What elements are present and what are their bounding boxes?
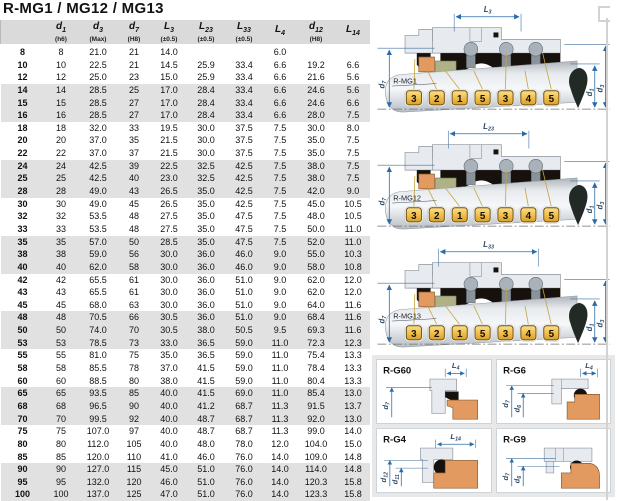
part-tag: 3: [496, 324, 514, 341]
svg-text:2: 2: [434, 94, 440, 105]
seat-panel-svg: L4d7d6R-G6: [497, 360, 611, 423]
value-cell: 40.0: [150, 400, 188, 413]
table-row: 8080112.010540.048.078.012.0104.015.0: [1, 438, 370, 451]
value-cell: 65: [44, 387, 78, 400]
value-cell: 33.4: [224, 84, 264, 97]
row-size-cell: 40: [1, 261, 44, 274]
value-cell: 27.5: [150, 223, 188, 236]
value-cell: 37.0: [78, 147, 118, 160]
value-cell: 20: [44, 134, 78, 147]
row-size-cell: 65: [1, 387, 44, 400]
dimension-label: d7: [377, 315, 387, 324]
value-cell: 63: [118, 299, 150, 312]
value-cell: 38.0: [296, 160, 336, 173]
value-cell: 7.5: [336, 134, 370, 147]
row-size-cell: 75: [1, 425, 44, 438]
dimension-label: d1: [585, 89, 595, 97]
value-cell: 48: [44, 311, 78, 324]
value-cell: 12.0: [336, 274, 370, 287]
value-cell: 11.3: [264, 425, 296, 438]
table-row: 100100137.012547.051.076.014.0123.315.8: [1, 488, 370, 501]
svg-text:3: 3: [503, 94, 509, 105]
row-size-cell: 12: [1, 71, 44, 84]
value-cell: 35.0: [150, 349, 188, 362]
row-size-cell: 35: [1, 236, 44, 249]
diagram-r-mg13: 3215345R-MG13L33d7d1d3: [372, 237, 615, 353]
value-cell: 59.0: [224, 337, 264, 350]
value-cell: 46.0: [150, 476, 188, 489]
table-row: 484870.56630.536.051.09.068.411.6: [1, 311, 370, 324]
value-cell: 32.0: [78, 122, 118, 135]
value-cell: 37: [118, 147, 150, 160]
table-row: 434365.56130.036.051.09.062.012.0: [1, 286, 370, 299]
value-cell: 125: [118, 488, 150, 501]
value-cell: 59.0: [224, 362, 264, 375]
table-row: 686896.59040.041.268.711.391.513.7: [1, 400, 370, 413]
value-cell: 11.0: [264, 362, 296, 375]
part-tag: 2: [428, 89, 446, 106]
value-cell: 14.0: [264, 463, 296, 476]
column-header: d12(H8): [296, 20, 336, 45]
dimension-label: L4: [452, 361, 460, 371]
value-cell: 76.0: [224, 463, 264, 476]
svg-text:3: 3: [503, 211, 509, 222]
value-cell: 42.5: [224, 198, 264, 211]
value-cell: 64.0: [296, 299, 336, 312]
value-cell: 51.0: [224, 286, 264, 299]
table-row: 121225.02315.025.933.46.621.65.6: [1, 71, 370, 84]
dimension-label: L33: [483, 240, 494, 250]
column-header: d1(h6): [44, 20, 78, 45]
part-tag: 5: [474, 324, 492, 341]
value-cell: 23.0: [150, 172, 188, 185]
value-cell: 73: [118, 337, 150, 350]
panel-label: R-G9: [503, 434, 526, 445]
value-cell: 55: [44, 349, 78, 362]
part-tag: 1: [451, 89, 469, 106]
part-tag: 4: [519, 206, 537, 223]
seal-model-label: R-MG12: [393, 194, 421, 203]
value-cell: 21.6: [296, 71, 336, 84]
value-cell: 8: [44, 45, 78, 59]
table-header: d1(h6)d3(Max)d7(H8)L3(±0.5)L23(±0.5)L33(…: [1, 20, 370, 45]
table-row: 505074.07030.538.050.59.569.311.6: [1, 324, 370, 337]
column-header: [1, 20, 44, 45]
value-cell: 66: [118, 311, 150, 324]
value-cell: 123.3: [296, 488, 336, 501]
value-cell: 75: [44, 425, 78, 438]
value-cell: 14.5: [150, 59, 188, 72]
value-cell: 30.5: [150, 311, 188, 324]
value-cell: 112.0: [78, 438, 118, 451]
row-size-cell: 68: [1, 400, 44, 413]
value-cell: 7.5: [264, 210, 296, 223]
value-cell: 61: [118, 286, 150, 299]
value-cell: 35: [118, 134, 150, 147]
dimension-label: d7: [381, 401, 391, 410]
value-cell: 76.0: [224, 488, 264, 501]
part-tag: 5: [542, 324, 560, 341]
value-cell: 33.0: [150, 337, 188, 350]
value-cell: 28.4: [188, 109, 224, 122]
value-cell: 28.4: [188, 84, 224, 97]
seat-panel-svg: L14d12d11R-G4: [377, 429, 491, 492]
seat-panels-grid: L4d7R-G60 L4d7d6R-G6 L14d12d11R-G4 d7d6R…: [372, 355, 615, 497]
value-cell: 60: [44, 375, 78, 388]
value-cell: 41.0: [150, 451, 188, 464]
value-cell: [224, 45, 264, 59]
row-size-cell: 58: [1, 362, 44, 375]
value-cell: 13.3: [336, 349, 370, 362]
spring: [529, 42, 543, 56]
dimension-label: d11: [390, 474, 400, 484]
value-cell: 10.5: [336, 210, 370, 223]
value-cell: 36.0: [188, 248, 224, 261]
value-cell: 33.4: [224, 97, 264, 110]
dimension-label: d7: [377, 197, 387, 206]
row-size-cell: 22: [1, 147, 44, 160]
value-cell: 10.8: [336, 261, 370, 274]
value-cell: 51.0: [188, 488, 224, 501]
value-cell: 7.5: [264, 122, 296, 135]
value-cell: 36.0: [188, 261, 224, 274]
seat-panel-svg: d7d6R-G9: [497, 429, 611, 492]
dimension-label: d1: [585, 324, 595, 332]
value-cell: 15.8: [336, 476, 370, 489]
value-cell: 14.8: [336, 451, 370, 464]
value-cell: 47.5: [224, 223, 264, 236]
value-cell: 11.3: [264, 400, 296, 413]
value-cell: 41.2: [188, 400, 224, 413]
value-cell: 48.0: [188, 438, 224, 451]
svg-text:5: 5: [549, 94, 555, 105]
value-cell: 127.0: [78, 463, 118, 476]
svg-text:4: 4: [526, 211, 532, 222]
value-cell: 6.6: [264, 71, 296, 84]
part-tag: 5: [474, 89, 492, 106]
value-cell: 62.0: [296, 274, 336, 287]
value-cell: 14: [44, 84, 78, 97]
value-cell: 9.0: [264, 274, 296, 287]
value-cell: 33.4: [224, 59, 264, 72]
value-cell: 13.7: [336, 400, 370, 413]
value-cell: 51.0: [224, 299, 264, 312]
value-cell: 41.5: [188, 387, 224, 400]
value-cell: 137.0: [78, 488, 118, 501]
value-cell: 16: [44, 109, 78, 122]
value-cell: 85: [118, 387, 150, 400]
value-cell: 110: [118, 451, 150, 464]
value-cell: 17.0: [150, 109, 188, 122]
value-cell: 42.5: [224, 172, 264, 185]
svg-text:1: 1: [457, 94, 463, 105]
value-cell: 37.5: [224, 134, 264, 147]
value-cell: 35.0: [296, 147, 336, 160]
value-cell: 38.0: [150, 375, 188, 388]
value-cell: 15.0: [336, 438, 370, 451]
row-size-cell: 18: [1, 122, 44, 135]
value-cell: 53.5: [78, 223, 118, 236]
value-cell: 105: [118, 438, 150, 451]
value-cell: 57.0: [78, 236, 118, 249]
value-cell: 33: [44, 223, 78, 236]
value-cell: 38.0: [296, 172, 336, 185]
value-cell: 7.5: [336, 172, 370, 185]
value-cell: 11.6: [336, 324, 370, 337]
part-tag: 3: [496, 206, 514, 223]
part-tag: 2: [428, 206, 446, 223]
dimension-label: d7: [500, 399, 510, 408]
value-cell: 7.5: [336, 160, 370, 173]
table-row: 252542.54023.032.542.57.538.07.5: [1, 172, 370, 185]
column-header: L33(±0.5): [224, 20, 264, 45]
value-cell: 30.0: [150, 248, 188, 261]
value-cell: 9.0: [336, 185, 370, 198]
value-cell: 100: [44, 488, 78, 501]
value-cell: 33.4: [224, 71, 264, 84]
dimension-label: L4: [585, 361, 593, 371]
value-cell: 28.0: [296, 109, 336, 122]
panel-r-g4: L14d12d11R-G4: [376, 428, 492, 493]
table-row: 424265.56130.036.051.09.062.012.0: [1, 274, 370, 287]
value-cell: 48: [118, 210, 150, 223]
value-cell: 55.0: [296, 248, 336, 261]
value-cell: 36.0: [188, 311, 224, 324]
value-cell: 6.6: [336, 97, 370, 110]
value-cell: 115: [118, 463, 150, 476]
value-cell: 35.0: [188, 198, 224, 211]
value-cell: 22: [44, 147, 78, 160]
value-cell: 6.6: [264, 97, 296, 110]
value-cell: 45.0: [150, 463, 188, 476]
value-cell: 104.0: [296, 438, 336, 451]
svg-text:5: 5: [480, 329, 486, 340]
value-cell: 17.0: [150, 97, 188, 110]
value-cell: 41.5: [188, 362, 224, 375]
value-cell: 30.0: [150, 261, 188, 274]
value-cell: 36.0: [188, 299, 224, 312]
row-size-cell: 50: [1, 324, 44, 337]
value-cell: 37.0: [150, 362, 188, 375]
value-cell: 13.0: [336, 387, 370, 400]
value-cell: 30.0: [188, 147, 224, 160]
table-row: 555581.07535.036.559.011.075.413.3: [1, 349, 370, 362]
value-cell: 28.5: [78, 84, 118, 97]
value-cell: 85.4: [296, 387, 336, 400]
seat-panel-svg: L4d7R-G60: [377, 360, 491, 423]
value-cell: 78.4: [296, 362, 336, 375]
value-cell: 92.0: [296, 413, 336, 426]
value-cell: 120.3: [296, 476, 336, 489]
value-cell: 39: [118, 160, 150, 173]
value-cell: 22.5: [78, 59, 118, 72]
table-row: 404062.05830.036.046.09.058.010.8: [1, 261, 370, 274]
dimension-label: d3: [596, 320, 606, 328]
value-cell: 81.0: [78, 349, 118, 362]
value-cell: 32.5: [188, 172, 224, 185]
value-cell: 6.6: [264, 109, 296, 122]
value-cell: 19.5: [150, 122, 188, 135]
part-tag: 5: [542, 89, 560, 106]
column-header: L3(±0.5): [150, 20, 188, 45]
row-size-cell: 38: [1, 248, 44, 261]
value-cell: 50: [44, 324, 78, 337]
part-tag: 3: [405, 324, 423, 341]
value-cell: 90: [44, 463, 78, 476]
value-cell: 26.5: [150, 185, 188, 198]
table-row: 656593.58540.041.569.011.085.413.0: [1, 387, 370, 400]
value-cell: 120: [118, 476, 150, 489]
svg-text:1: 1: [457, 211, 463, 222]
value-cell: 51.0: [224, 311, 264, 324]
value-cell: 30.0: [188, 122, 224, 135]
row-size-cell: 80: [1, 438, 44, 451]
svg-text:2: 2: [434, 329, 440, 340]
row-size-cell: 33: [1, 223, 44, 236]
value-cell: 68: [44, 400, 78, 413]
value-cell: 27: [118, 109, 150, 122]
value-cell: 47.5: [224, 236, 264, 249]
panel-r-g60: L4d7R-G60: [376, 359, 492, 424]
value-cell: 36.0: [188, 286, 224, 299]
dimension-label: L14: [450, 432, 461, 442]
table-row: 323253.54827.535.047.57.548.010.5: [1, 210, 370, 223]
value-cell: 37.5: [224, 122, 264, 135]
value-cell: 30: [44, 198, 78, 211]
value-cell: 21.0: [78, 45, 118, 59]
svg-text:5: 5: [480, 211, 486, 222]
value-cell: 25.9: [188, 59, 224, 72]
table-row: 101022.52114.525.933.46.619.26.6: [1, 59, 370, 72]
value-cell: 45.0: [296, 198, 336, 211]
value-cell: 14.0: [336, 425, 370, 438]
value-cell: 8.0: [336, 122, 370, 135]
svg-text:4: 4: [526, 94, 532, 105]
value-cell: 80: [118, 375, 150, 388]
value-cell: 11.0: [264, 337, 296, 350]
row-size-cell: 14: [1, 84, 44, 97]
value-cell: 14.0: [264, 476, 296, 489]
value-cell: 40: [118, 172, 150, 185]
value-cell: 10: [44, 59, 78, 72]
row-size-cell: 95: [1, 476, 44, 489]
value-cell: 56: [118, 248, 150, 261]
value-cell: 40.0: [150, 413, 188, 426]
value-cell: 6.0: [264, 45, 296, 59]
value-cell: 53: [44, 337, 78, 350]
part-tag: 4: [519, 324, 537, 341]
value-cell: 11.3: [264, 413, 296, 426]
row-size-cell: 15: [1, 97, 44, 110]
row-size-cell: 24: [1, 160, 44, 173]
diagram-r-mg1: 3215345R-MG1L3d7d1d3: [372, 2, 615, 118]
value-cell: 109.0: [296, 451, 336, 464]
spring: [464, 42, 478, 56]
value-cell: 49.0: [78, 198, 118, 211]
part-tag: 3: [405, 89, 423, 106]
row-size-cell: 85: [1, 451, 44, 464]
value-cell: 11.0: [264, 387, 296, 400]
seal-diagram-svg: 3215345R-MG13L33d7d1d3: [372, 237, 615, 353]
value-cell: 5.6: [336, 84, 370, 97]
panel-label: R-G4: [383, 434, 406, 445]
value-cell: 35.0: [296, 134, 336, 147]
value-cell: 47.0: [150, 488, 188, 501]
value-cell: 59.0: [224, 349, 264, 362]
dimension-label: d7: [500, 472, 510, 481]
svg-text:3: 3: [411, 329, 417, 340]
value-cell: 42.5: [78, 172, 118, 185]
svg-text:5: 5: [549, 211, 555, 222]
value-cell: 50.0: [296, 223, 336, 236]
value-cell: 58.0: [296, 261, 336, 274]
value-cell: [336, 45, 370, 59]
value-cell: 97: [118, 425, 150, 438]
value-cell: 69.3: [296, 324, 336, 337]
table-row: 282849.04326.535.042.57.542.09.0: [1, 185, 370, 198]
value-cell: 45: [118, 198, 150, 211]
value-cell: 13.3: [336, 375, 370, 388]
value-cell: 12.0: [264, 438, 296, 451]
dimension-label: L3: [484, 5, 492, 15]
value-cell: 43: [118, 185, 150, 198]
svg-text:3: 3: [411, 211, 417, 222]
value-cell: 35.0: [188, 223, 224, 236]
value-cell: 21.5: [150, 147, 188, 160]
value-cell: 12.3: [336, 337, 370, 350]
value-cell: 42.5: [224, 185, 264, 198]
table-row: 353557.05028.535.047.57.552.011.0: [1, 236, 370, 249]
table-row: 606088.58038.041.559.011.080.413.3: [1, 375, 370, 388]
value-cell: 59.0: [224, 375, 264, 388]
column-header: L14: [336, 20, 370, 45]
value-cell: 46.0: [188, 451, 224, 464]
value-cell: 11.6: [336, 311, 370, 324]
value-cell: 52.0: [296, 236, 336, 249]
value-cell: 21.5: [150, 134, 188, 147]
value-cell: 21: [118, 45, 150, 59]
dimensions-table-wrap: d1(h6)d3(Max)d7(H8)L3(±0.5)L23(±0.5)L33(…: [1, 20, 370, 501]
value-cell: 37.5: [224, 147, 264, 160]
table-row: 303049.04526.535.042.57.545.010.5: [1, 198, 370, 211]
value-cell: 11.0: [336, 223, 370, 236]
row-size-cell: 90: [1, 463, 44, 476]
value-cell: 69.0: [224, 387, 264, 400]
value-cell: 38: [44, 248, 78, 261]
seal-diagram-svg: 3215345R-MG12L23d7d1d3: [372, 119, 615, 235]
diagram-column: 3215345R-MG1L3d7d1d3 3215345R-MG12L23d7d…: [372, 0, 617, 500]
value-cell: 17.0: [150, 84, 188, 97]
row-size-cell: 28: [1, 185, 44, 198]
value-cell: 9.0: [264, 311, 296, 324]
table-row: 181832.03319.530.037.57.530.08.0: [1, 122, 370, 135]
value-cell: 42.5: [224, 160, 264, 173]
row-size-cell: 25: [1, 172, 44, 185]
value-cell: 93.5: [78, 387, 118, 400]
value-cell: 9.0: [264, 286, 296, 299]
value-cell: 78.5: [78, 337, 118, 350]
part-tag: 5: [542, 206, 560, 223]
row-size-cell: 53: [1, 337, 44, 350]
value-cell: 65.5: [78, 274, 118, 287]
value-cell: 48: [118, 223, 150, 236]
svg-text:5: 5: [480, 94, 486, 105]
value-cell: 6.6: [336, 59, 370, 72]
value-cell: 75.4: [296, 349, 336, 362]
value-cell: 70: [118, 324, 150, 337]
part-tag: 3: [496, 89, 514, 106]
table-row: 454568.06330.036.051.09.064.011.6: [1, 299, 370, 312]
